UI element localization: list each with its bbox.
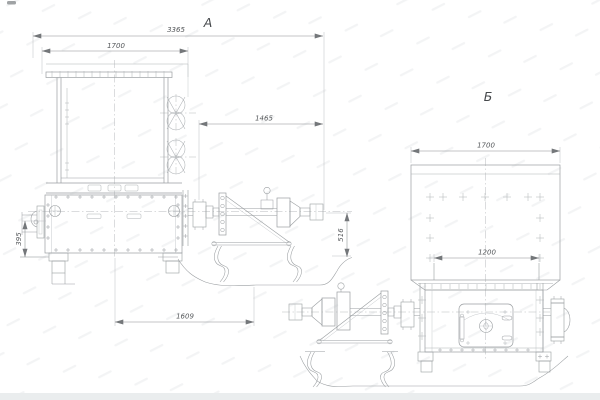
view-b-label: Б [484, 89, 493, 104]
dim-outlet-width-b: 1200 [478, 249, 496, 257]
view-a-label: А [203, 15, 213, 30]
engineering-drawing-page: 3365 1700 1465 395 1609 516 А [0, 0, 600, 400]
dim-overall-length: 3365 [167, 26, 185, 34]
dim-drive-projection: 1465 [255, 115, 273, 123]
dim-hopper-width-a: 1700 [107, 42, 125, 50]
dim-hopper-width-b: 1700 [477, 142, 495, 150]
corner-mark [7, 1, 16, 5]
dim-base-span: 1609 [176, 313, 194, 321]
assembly-drawing-canvas: 3365 1700 1465 395 1609 516 А [0, 0, 600, 400]
dim-drive-height: 516 [337, 228, 345, 242]
dim-bracket-height: 395 [15, 232, 23, 246]
footer-band [0, 393, 600, 400]
